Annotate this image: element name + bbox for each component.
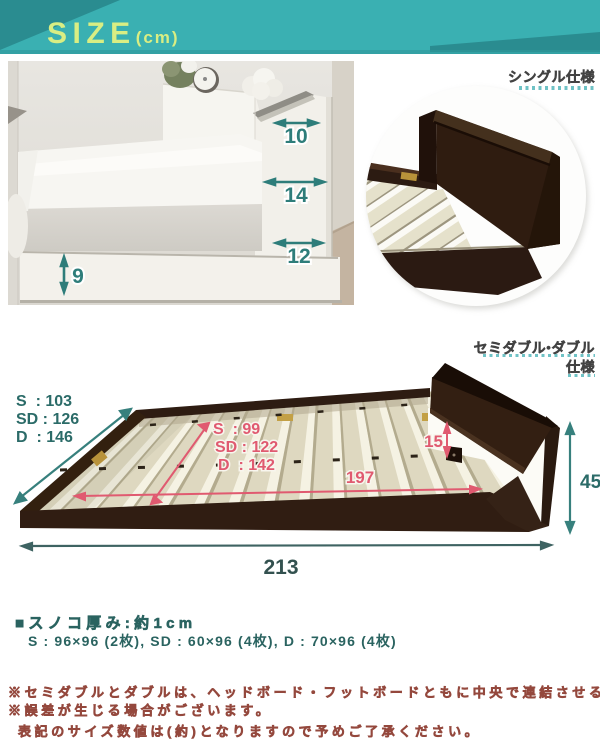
svg-text:15: 15	[424, 432, 443, 451]
svg-text:9: 9	[72, 265, 84, 288]
svg-text:SD : 122: SD : 122	[215, 439, 278, 456]
svg-text:10: 10	[284, 125, 307, 148]
svg-text:D : 146: D : 146	[16, 429, 73, 446]
svg-text:14: 14	[284, 184, 308, 207]
svg-text:12: 12	[287, 245, 310, 268]
svg-text:213: 213	[263, 556, 298, 579]
svg-text:S : 99: S : 99	[213, 421, 260, 438]
svg-text:D : 142: D : 142	[218, 457, 275, 474]
svg-text:197: 197	[346, 468, 374, 487]
svg-text:45: 45	[580, 472, 600, 493]
svg-text:S : 103: S : 103	[16, 393, 72, 410]
svg-text:SD : 126: SD : 126	[16, 411, 79, 428]
